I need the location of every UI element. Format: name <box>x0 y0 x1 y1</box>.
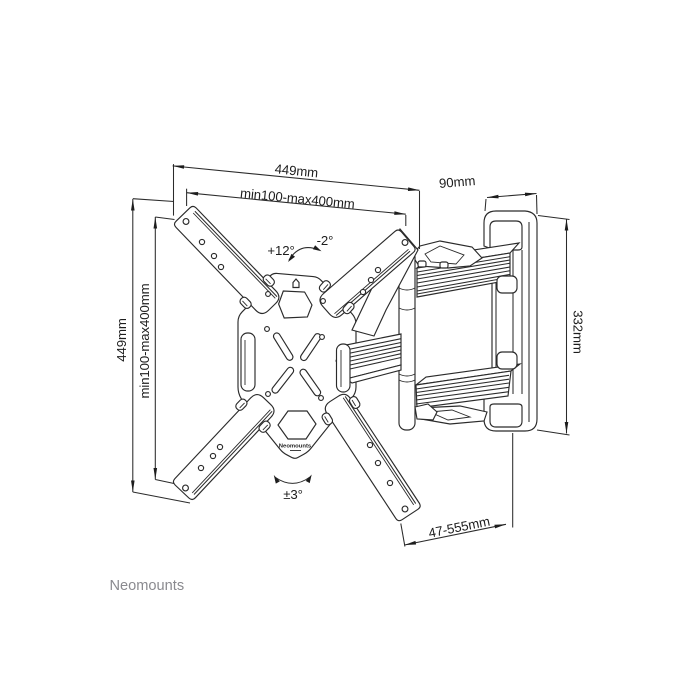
svg-text:Neomounts: Neomounts <box>279 444 312 450</box>
svg-text:90mm: 90mm <box>438 173 475 191</box>
svg-text:±3°: ±3° <box>283 487 303 502</box>
svg-text:min100-max400mm: min100-max400mm <box>137 283 152 398</box>
svg-text:+12°: +12° <box>267 243 294 258</box>
svg-text:449mm: 449mm <box>114 318 129 362</box>
svg-text:-2°: -2° <box>317 233 334 248</box>
svg-text:Neomounts: Neomounts <box>110 578 185 594</box>
svg-text:332mm: 332mm <box>571 310 586 354</box>
